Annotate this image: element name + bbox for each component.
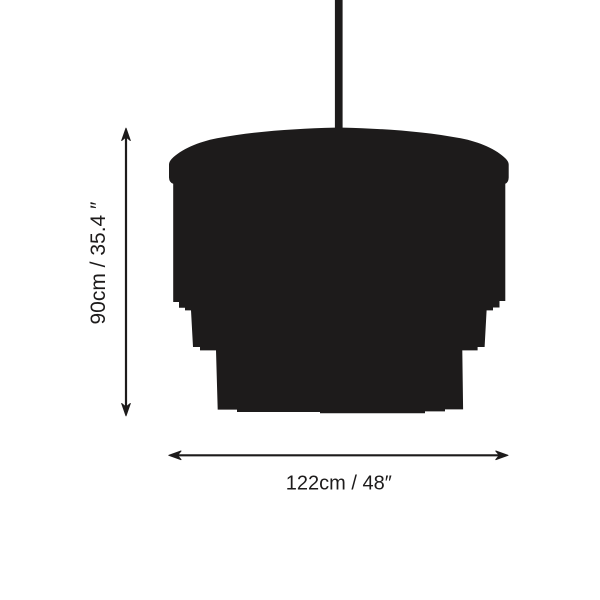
- svg-text:90cm / 35.4 ″: 90cm / 35.4 ″: [87, 201, 110, 325]
- svg-text:122cm / 48″: 122cm / 48″: [286, 473, 392, 495]
